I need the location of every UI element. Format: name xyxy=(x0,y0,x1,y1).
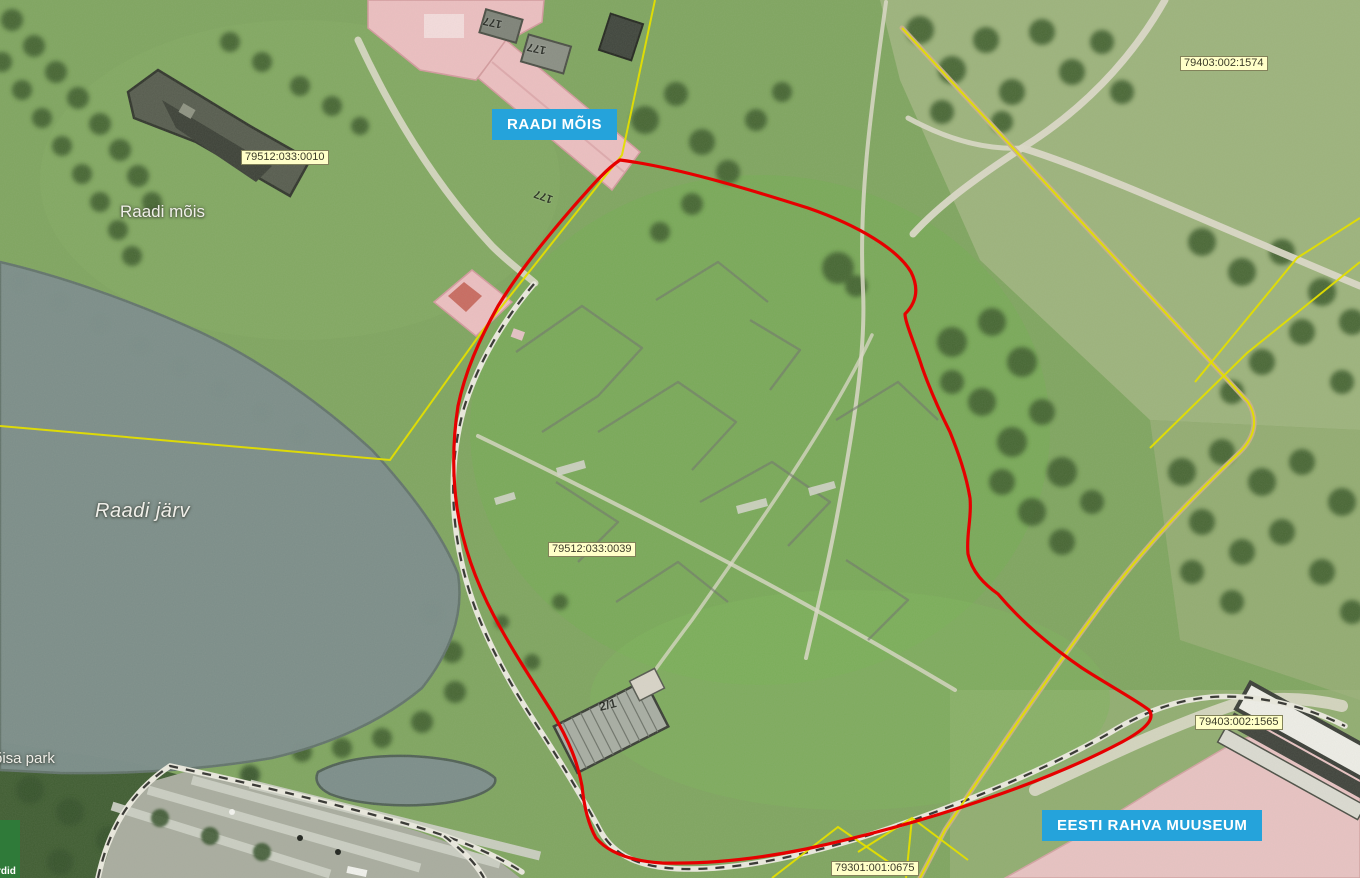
cadastral-label-79512-033-0039: 79512:033:0039 xyxy=(548,542,636,557)
cadastral-label-79301-001-0675: 79301:001:0675 xyxy=(831,861,919,876)
toponym-moisa-park-partial: õisa park xyxy=(0,750,55,767)
toponym-raadi-jarv: Raadi järv xyxy=(95,500,190,523)
poi-badge-raadi-mois[interactable]: RAADI MÕIS xyxy=(492,109,617,140)
photo-grain xyxy=(0,0,1360,878)
clipped-green-label: rdid xyxy=(0,820,20,878)
clipped-green-label-text: rdid xyxy=(0,866,16,877)
cadastral-label-79403-002-1574: 79403:002:1574 xyxy=(1180,56,1268,71)
poi-badge-eesti-rahva-muuseum[interactable]: EESTI RAHVA MUUSEUM xyxy=(1042,810,1262,841)
aerial-basemap[interactable] xyxy=(0,0,1360,878)
map-viewport: RAADI MÕIS EESTI RAHVA MUUSEUM 79512:033… xyxy=(0,0,1360,878)
toponym-raadi-mois: Raadi mõis xyxy=(120,202,205,222)
cadastral-label-79512-033-0010: 79512:033:0010 xyxy=(241,150,329,165)
cadastral-label-79403-002-1565: 79403:002:1565 xyxy=(1195,715,1283,730)
